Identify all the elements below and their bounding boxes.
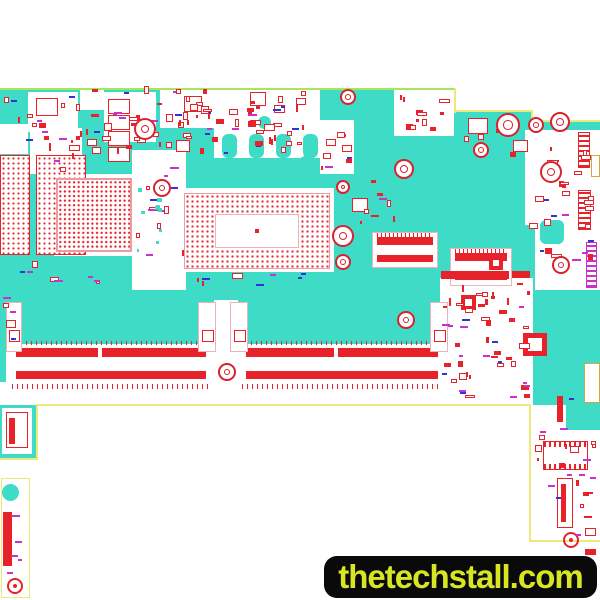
via-pad	[222, 134, 237, 158]
fiducial-mark	[7, 578, 23, 594]
smd-component	[460, 326, 468, 328]
smd-component	[524, 385, 530, 387]
smd-component	[298, 277, 302, 279]
smd-component	[94, 280, 100, 282]
smd-component	[360, 221, 362, 224]
smd-component	[544, 219, 551, 226]
smd-component	[49, 143, 51, 151]
mounting-hole	[496, 113, 520, 137]
smd-component	[126, 145, 132, 148]
smd-component	[523, 326, 529, 329]
smd-component	[248, 114, 257, 116]
smd-component	[264, 124, 274, 131]
smd-component	[569, 398, 575, 400]
smd-component	[11, 555, 18, 557]
smd-component	[443, 306, 447, 309]
smd-component	[183, 112, 188, 120]
smd-component	[494, 351, 501, 355]
smd-component	[466, 372, 468, 377]
smd-component	[576, 480, 579, 486]
smd-component	[567, 474, 572, 476]
smd-component	[273, 123, 282, 127]
smd-component	[519, 343, 530, 348]
smd-component	[583, 492, 589, 495]
smd-component	[523, 382, 528, 384]
board-edge	[36, 404, 38, 460]
smd-component	[444, 363, 451, 367]
smd-component	[464, 136, 469, 142]
smd-component	[205, 133, 211, 135]
connector-pin-bar	[16, 371, 206, 379]
smd-component	[76, 104, 80, 111]
smd-component	[460, 392, 466, 394]
smd-component	[585, 528, 596, 536]
smd-component	[583, 150, 587, 155]
component-zone	[132, 150, 186, 290]
pin-tick-row	[16, 341, 206, 345]
smd-component	[540, 431, 546, 433]
ic-component	[468, 118, 488, 134]
smd-component	[589, 492, 593, 495]
ic-component	[513, 140, 528, 152]
smd-component	[87, 139, 97, 146]
connector-pin-bar	[3, 512, 12, 566]
smd-component	[548, 485, 555, 487]
smd-component	[10, 311, 16, 313]
smd-component	[248, 121, 256, 127]
smd-component	[297, 142, 302, 145]
smd-component	[583, 459, 590, 461]
smd-component	[491, 356, 497, 358]
smd-pad	[234, 330, 246, 342]
smd-component	[94, 131, 101, 133]
smd-component	[572, 259, 581, 261]
smd-component	[69, 96, 75, 98]
mounting-hole	[552, 256, 570, 274]
smd-component	[570, 446, 579, 452]
smd-component	[492, 341, 498, 343]
smd-component	[157, 223, 161, 229]
smd-component	[350, 158, 352, 163]
smd-component	[506, 357, 512, 361]
smd-component	[462, 285, 464, 292]
smd-component	[6, 320, 16, 327]
smd-component	[302, 125, 304, 131]
smd-component	[403, 97, 405, 102]
smd-component	[540, 250, 544, 252]
mounting-hole	[340, 89, 356, 105]
ic-component	[176, 140, 190, 152]
smd-component	[11, 100, 17, 102]
smd-component	[86, 129, 88, 135]
mounting-hole	[335, 254, 351, 270]
board-edge	[0, 88, 456, 90]
smd-component	[32, 261, 38, 268]
smd-component	[229, 109, 238, 116]
board-edge	[0, 458, 38, 460]
smd-component	[337, 132, 345, 138]
smd-component	[278, 96, 283, 102]
smd-component	[203, 89, 206, 94]
smd-component	[18, 117, 20, 124]
smd-component	[26, 139, 33, 141]
dimm-latch	[430, 302, 448, 352]
smd-component	[469, 375, 471, 378]
connector-pin-bar	[557, 396, 563, 422]
smd-component	[510, 152, 516, 156]
connector-pin-bar	[255, 229, 259, 233]
smd-component	[170, 167, 178, 169]
smd-component	[581, 155, 591, 160]
mounting-hole	[528, 117, 544, 133]
smd-component	[478, 134, 485, 140]
smd-component	[216, 119, 224, 125]
smd-component	[478, 304, 484, 308]
smd-component	[301, 273, 306, 275]
smd-component	[88, 276, 93, 278]
smd-component	[499, 310, 507, 314]
smd-component	[451, 379, 458, 383]
smd-component	[3, 297, 12, 299]
smd-component	[511, 361, 516, 367]
smd-component	[3, 303, 9, 309]
smd-component	[537, 458, 539, 461]
smd-component	[80, 131, 82, 137]
smd-component	[202, 278, 210, 280]
qfn-chip	[489, 256, 503, 270]
smd-component	[519, 306, 524, 308]
smd-component	[137, 249, 139, 251]
smd-component	[247, 108, 254, 112]
smd-component	[124, 92, 129, 94]
smd-component	[72, 153, 74, 158]
smd-component	[529, 223, 539, 229]
smd-component	[379, 198, 387, 200]
smd-component	[11, 338, 16, 340]
smd-component	[250, 101, 255, 105]
smd-component	[136, 233, 141, 238]
smd-component	[560, 428, 568, 430]
smd-component	[393, 216, 395, 222]
m2-connector	[372, 232, 438, 268]
smd-component	[11, 515, 20, 517]
smd-component	[498, 361, 502, 363]
smd-component	[296, 104, 298, 111]
smd-component	[430, 127, 436, 132]
smd-component	[203, 109, 212, 112]
smd-component	[562, 191, 570, 196]
smd-component	[559, 463, 566, 468]
mounting-hole	[540, 161, 562, 183]
smd-component	[292, 128, 299, 130]
mounting-hole	[394, 159, 414, 179]
smd-component	[146, 254, 153, 256]
smd-component	[486, 337, 489, 343]
board-edge	[454, 110, 533, 112]
smd-component	[212, 137, 218, 142]
smd-component	[301, 91, 306, 95]
smd-component	[270, 274, 276, 276]
smd-component	[69, 145, 80, 151]
smd-component	[517, 283, 522, 285]
mounting-hole	[134, 118, 156, 140]
smd-component	[455, 343, 460, 347]
smd-component	[326, 139, 336, 146]
smd-component	[482, 292, 488, 297]
edge-connector	[591, 155, 600, 177]
smd-component	[179, 120, 181, 126]
component-zone	[0, 124, 28, 154]
mounting-hole	[332, 225, 354, 247]
edge-connector	[586, 242, 597, 288]
smd-component	[325, 166, 334, 168]
smd-component	[485, 299, 488, 304]
smd-component	[54, 280, 63, 282]
smd-component	[144, 86, 149, 94]
board-edge	[38, 404, 531, 406]
smd-component	[187, 120, 189, 125]
smd-component	[20, 271, 24, 273]
smd-pad	[434, 330, 446, 342]
smd-component	[113, 113, 117, 115]
smd-component	[465, 395, 475, 398]
via-pad	[299, 156, 312, 169]
smd-component	[562, 214, 569, 216]
smd-component	[197, 278, 199, 282]
smd-component	[102, 136, 111, 141]
mounting-hole	[473, 142, 489, 158]
smd-component	[159, 229, 162, 232]
smd-component	[590, 477, 596, 479]
smd-component	[76, 136, 80, 141]
smd-component	[37, 120, 42, 122]
smd-component	[321, 166, 323, 170]
smd-pad	[202, 330, 214, 342]
smd-component	[59, 138, 67, 140]
smd-component	[256, 284, 264, 286]
smd-component	[584, 200, 594, 206]
smd-component	[400, 95, 402, 100]
smd-component	[156, 241, 159, 244]
smd-component	[157, 103, 161, 105]
connector-pin-bar	[441, 271, 509, 279]
smd-component	[92, 147, 101, 154]
smd-component	[582, 252, 588, 254]
smd-component	[27, 114, 32, 118]
connector-pin-bar	[102, 348, 206, 357]
smd-component	[274, 135, 276, 141]
smd-component	[4, 97, 9, 103]
smd-component	[54, 160, 60, 162]
smd-component	[71, 140, 73, 144]
smd-component	[458, 361, 463, 367]
smd-component	[585, 224, 592, 229]
smd-component	[442, 373, 447, 375]
smd-component	[171, 187, 178, 189]
smd-component	[377, 193, 383, 195]
smd-component	[410, 125, 416, 130]
smd-component	[462, 319, 470, 321]
smd-component	[281, 106, 285, 108]
smd-component	[371, 180, 376, 182]
smd-component	[175, 114, 182, 116]
bga-chip	[56, 178, 132, 252]
smd-component	[157, 198, 162, 203]
smd-component	[200, 148, 205, 154]
smd-component	[510, 396, 517, 398]
smd-component	[190, 104, 198, 111]
smd-component	[585, 206, 594, 212]
smd-component	[156, 205, 160, 209]
pin-tick-row	[12, 384, 208, 389]
dimm-latch	[198, 302, 216, 352]
smd-component	[32, 123, 37, 127]
smd-component	[207, 128, 211, 130]
smd-component	[61, 103, 65, 108]
smd-component	[166, 142, 172, 149]
smd-component	[580, 504, 584, 508]
smd-component	[579, 474, 586, 476]
smd-component	[560, 182, 569, 186]
smd-component	[255, 141, 263, 145]
connector-pin-bar	[512, 271, 530, 278]
smd-component	[159, 142, 161, 147]
pin-tick-row	[246, 341, 438, 345]
smd-component	[465, 308, 473, 313]
smd-component	[141, 211, 144, 214]
smd-component	[182, 250, 184, 257]
smd-component	[456, 303, 464, 306]
smd-component	[507, 298, 509, 305]
mounting-hole	[397, 311, 415, 329]
smd-component	[91, 114, 99, 117]
smd-component	[535, 196, 543, 202]
smd-component	[235, 119, 240, 126]
smd-component	[575, 534, 581, 536]
mounting-hole	[336, 180, 350, 194]
smd-component	[527, 291, 530, 296]
smd-component	[7, 572, 12, 574]
smd-component	[565, 444, 567, 449]
smd-component	[524, 394, 530, 398]
connector-pin-bar	[585, 549, 596, 555]
smd-component	[439, 99, 450, 103]
smd-component	[323, 153, 331, 159]
smd-component	[42, 131, 48, 133]
smd-component	[27, 271, 34, 273]
smd-component	[164, 206, 169, 214]
smd-component	[483, 355, 489, 357]
smd-component	[364, 209, 369, 214]
smd-component	[232, 273, 243, 279]
via-pad	[2, 484, 19, 501]
smd-component	[416, 119, 419, 122]
connector-pin-bar	[16, 348, 98, 357]
smd-component	[117, 148, 119, 154]
smd-component	[186, 136, 192, 139]
dimm-latch	[230, 302, 248, 352]
smd-component	[584, 516, 591, 518]
smd-component	[176, 89, 181, 94]
smd-component	[164, 175, 168, 177]
smd-component	[459, 355, 463, 357]
smd-component	[196, 115, 198, 118]
smd-component	[588, 254, 593, 260]
smd-component	[232, 128, 238, 130]
via-pad	[303, 134, 318, 158]
pin-tick-row	[242, 384, 442, 389]
smd-component	[287, 131, 291, 136]
smd-component	[535, 445, 542, 452]
smd-component	[588, 240, 594, 242]
smd-component	[186, 96, 190, 102]
smd-component	[492, 292, 494, 299]
connector-pin-bar	[246, 348, 334, 357]
smd-component	[146, 186, 150, 190]
smd-component	[138, 188, 142, 192]
smd-component	[387, 200, 391, 207]
smd-component	[556, 497, 561, 499]
smd-component	[202, 281, 204, 286]
smd-component	[442, 324, 450, 326]
smd-component	[422, 119, 426, 126]
mounting-hole	[218, 363, 236, 381]
ic-component	[36, 98, 58, 116]
mounting-hole	[153, 179, 171, 197]
via-pad	[276, 134, 291, 158]
smd-component	[150, 199, 157, 201]
smd-component	[449, 298, 451, 306]
smd-component	[44, 136, 50, 141]
connector-pin-bar	[561, 484, 566, 522]
smd-component	[224, 152, 228, 154]
smd-component	[417, 112, 426, 116]
smd-component	[15, 541, 22, 543]
smd-component	[591, 441, 596, 444]
bga-connector	[0, 155, 30, 255]
connector-pin-bar	[338, 348, 438, 357]
smd-component	[256, 105, 261, 109]
via-pad	[245, 158, 258, 171]
smd-component	[440, 112, 445, 115]
pcb-boardview-image: GL4A0/GL5A0 NM-C631 Rev:1.0 Made in Chin…	[0, 0, 600, 600]
smd-component	[39, 123, 47, 129]
edge-connector	[584, 363, 600, 403]
smd-component	[342, 145, 352, 153]
watermark-text: thetechstall.com	[338, 558, 582, 596]
smd-component	[539, 435, 545, 440]
smd-component	[92, 89, 97, 92]
smd-component	[281, 147, 286, 153]
smd-component	[119, 117, 125, 119]
smd-component	[104, 123, 112, 130]
mounting-hole	[550, 112, 570, 132]
smd-pad	[9, 330, 20, 342]
board-edge	[529, 404, 531, 542]
smd-component	[256, 130, 264, 134]
smd-component	[273, 109, 280, 111]
smd-component	[286, 141, 292, 146]
smd-component	[574, 171, 582, 175]
smd-component	[545, 248, 553, 253]
smd-component	[60, 167, 66, 172]
smd-component	[371, 215, 379, 217]
smd-component	[551, 215, 557, 217]
smd-component	[269, 137, 271, 144]
smd-component	[166, 114, 173, 122]
smd-component	[18, 559, 22, 561]
watermark-banner: thetechstall.com	[324, 556, 597, 598]
